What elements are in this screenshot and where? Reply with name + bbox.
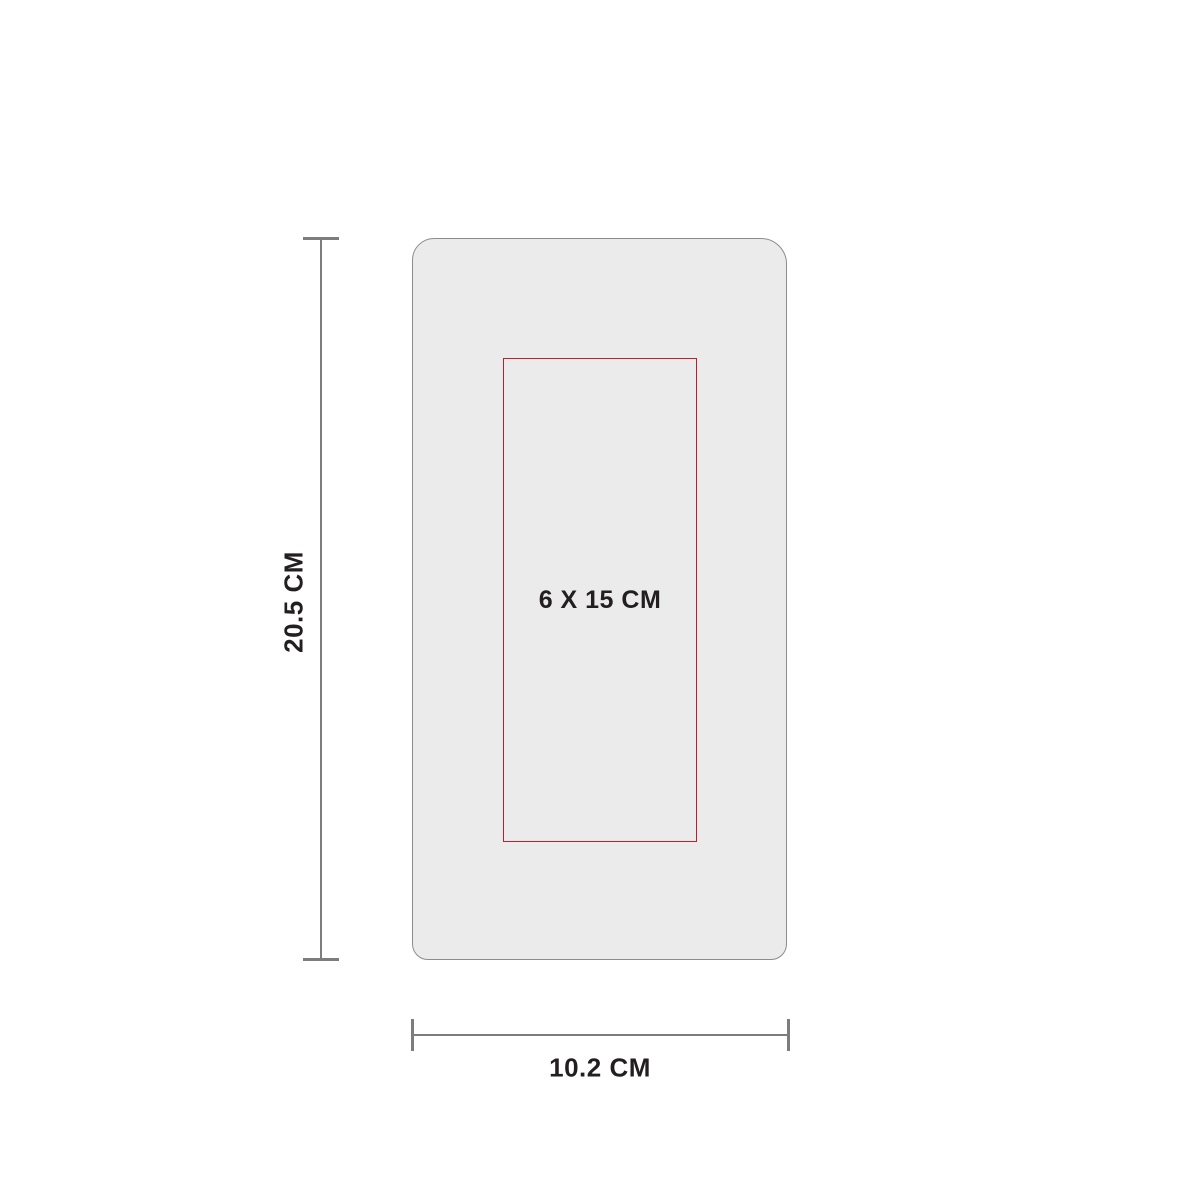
print-area-box: 6 X 15 CM [503,358,697,842]
diagram-canvas: 6 X 15 CM 20.5 CM 10.2 CM [0,0,1200,1200]
width-dimension-tick-right [787,1019,790,1051]
width-dimension-line [412,1034,789,1036]
height-dimension-cap-top [303,237,339,240]
print-area-label: 6 X 15 CM [539,586,662,615]
width-dimension-tick-left [411,1019,414,1051]
height-dimension-line [320,238,322,960]
width-dimension-label: 10.2 CM [549,1053,651,1084]
height-dimension-label: 20.5 CM [279,551,310,653]
height-dimension-cap-bottom [303,958,339,961]
